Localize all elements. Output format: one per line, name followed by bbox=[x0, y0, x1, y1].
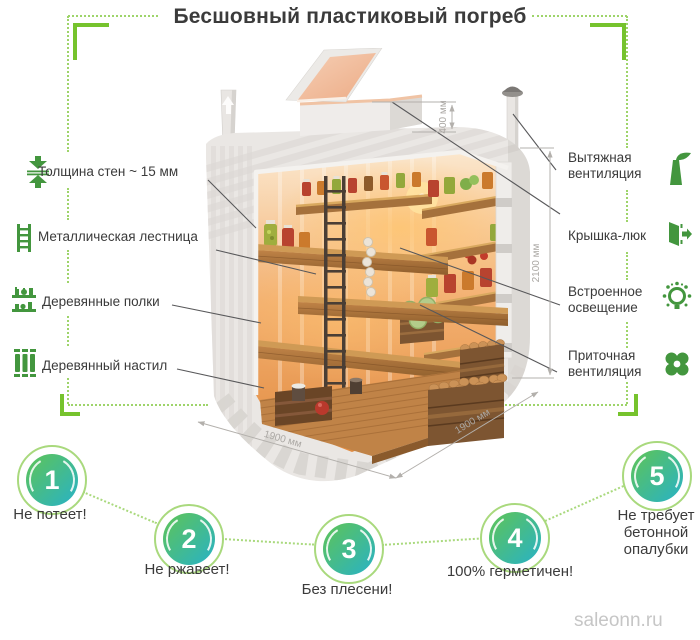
benefit-badge-3: 3 bbox=[314, 514, 384, 584]
frame-dotted-right-3 bbox=[626, 252, 628, 280]
callout-hatch-lid: Крышка-люк bbox=[568, 228, 664, 244]
supply-vent-icon bbox=[664, 351, 690, 377]
benefit-number-5: 5 bbox=[649, 461, 664, 492]
benefit-connector-3-4 bbox=[382, 538, 479, 546]
wall-cut-face bbox=[496, 162, 512, 358]
built-in-light-icon bbox=[662, 281, 692, 315]
callout-exhaust-vent: Вытяжная вентиляция bbox=[568, 150, 664, 182]
benefit-label-5: Не требует бетонной опалубки bbox=[604, 507, 700, 558]
dim-inner-height: 2100 мм bbox=[531, 243, 542, 282]
watermark: saleonn.ru bbox=[574, 610, 663, 632]
hatch-lid-icon bbox=[666, 222, 692, 246]
benefit-number-1: 1 bbox=[44, 465, 59, 496]
benefit-connector-2-3 bbox=[222, 538, 314, 546]
benefit-label-1: Не потеет! bbox=[0, 506, 100, 523]
cellar-illustration: 400 мм 2100 мм 1900 мм 1900 мм bbox=[70, 48, 562, 490]
dim-hatch-height: 400 мм bbox=[438, 100, 449, 133]
callout-built-in-light: Встроенное освещение bbox=[568, 284, 664, 316]
page-title: Бесшовный пластиковый погреб bbox=[0, 5, 700, 29]
benefit-badge-1: 1 bbox=[17, 445, 87, 515]
callout-supply-vent: Приточная вентиляция bbox=[568, 348, 664, 380]
red-sack bbox=[315, 401, 329, 415]
benefit-number-3: 3 bbox=[341, 534, 356, 565]
benefit-label-2: Не ржавеет! bbox=[134, 561, 240, 578]
wooden-shelves-icon bbox=[11, 286, 37, 314]
benefit-label-4: 100% герметичен! bbox=[432, 563, 588, 580]
infographic-canvas: Бесшовный пластиковый погреб bbox=[0, 0, 700, 640]
frame-dotted-left-2 bbox=[67, 188, 69, 220]
wooden-decking-icon bbox=[14, 349, 36, 379]
benefit-label-3: Без плесени! bbox=[290, 581, 404, 598]
corner-bracket-bottom-right bbox=[618, 394, 638, 416]
frame-dotted-left-3 bbox=[67, 250, 69, 283]
benefit-number-4: 4 bbox=[507, 523, 522, 554]
hatch-lid bbox=[286, 48, 422, 136]
frame-dotted-left-4 bbox=[67, 316, 69, 346]
frame-dotted-right-1 bbox=[626, 16, 628, 148]
frame-dotted-right-4 bbox=[626, 322, 628, 348]
benefit-badge-5: 5 bbox=[622, 441, 692, 511]
frame-dotted-right-2 bbox=[626, 190, 628, 222]
frame-dotted-left-1 bbox=[67, 16, 69, 152]
metal-ladder-icon bbox=[16, 224, 32, 252]
benefit-number-2: 2 bbox=[181, 524, 196, 555]
exhaust-vent-icon bbox=[662, 151, 692, 185]
